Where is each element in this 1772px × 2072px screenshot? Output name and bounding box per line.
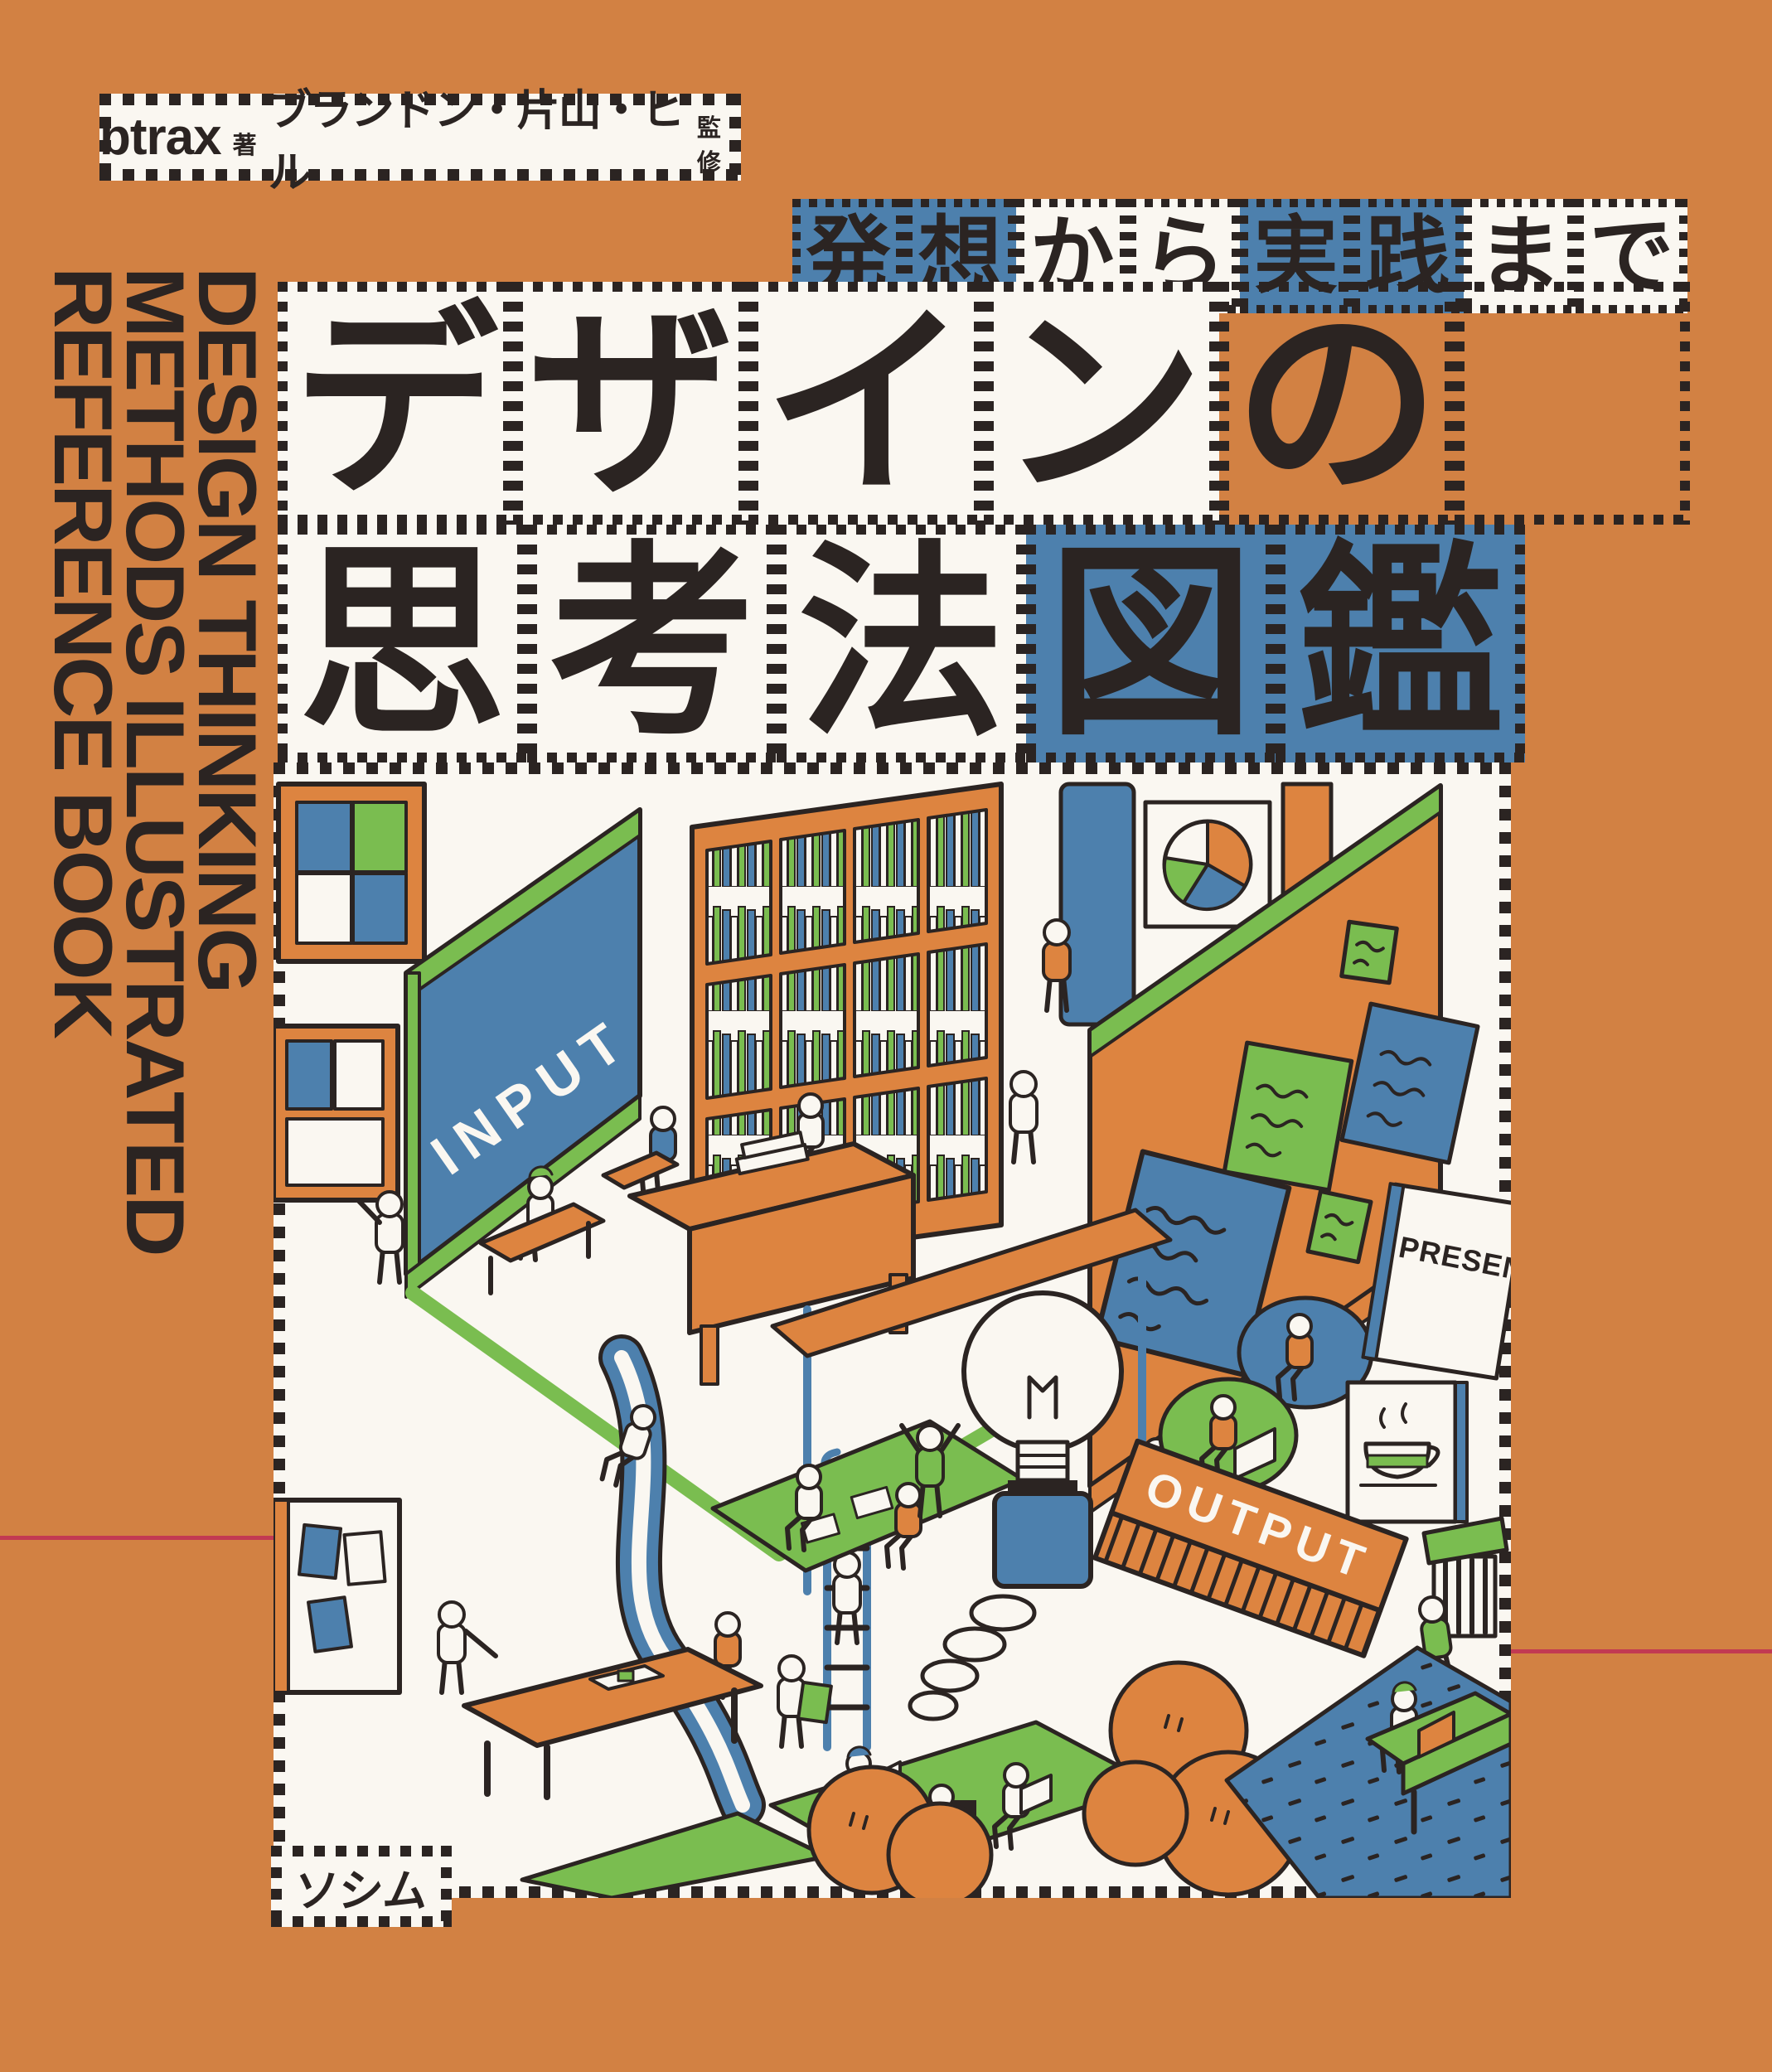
fold-line-right [1511,1649,1772,1653]
title-row-1: デ ザ イ ン の [278,282,1690,525]
author-badge: btrax 著 ブランドン・片山・ヒル 監修 [99,94,741,181]
side-title-line: DESIGN THINKING [191,267,264,1254]
cover-illustration: INPUT [274,762,1511,1898]
title-char-cell: ザ [513,282,748,525]
author-role: 著 [233,126,257,161]
coffee-poster [1348,1382,1467,1522]
slide [600,1358,743,1805]
title-row-2: 思 考 法 図 鑑 [278,525,1525,762]
title-char-cell: ン [984,282,1219,525]
side-title: DESIGN THINKING METHODS ILLUSTRATED REFE… [47,267,264,1254]
presentation-sign: PRESEN [1363,1184,1511,1378]
person [1010,1072,1037,1162]
title-char-cell: 図 [1026,525,1276,762]
title-char-cell: 思 [278,525,527,762]
publisher-logo: ソシム [271,1846,452,1927]
side-title-line: METHODS ILLUSTRATED [119,267,191,1254]
side-title-line: REFERENCE BOOK [47,267,119,1254]
supervisor-name: ブランドン・片山・ヒル [269,75,685,200]
title-char-cell: イ [748,282,984,525]
window [278,784,424,961]
title-char-cell: の [1219,282,1455,525]
fold-line-left [0,1536,274,1540]
title-char-cell: 法 [777,525,1026,762]
window [274,1026,398,1200]
book-cover: DESIGN THINKING METHODS ILLUSTRATED REFE… [0,0,1772,2072]
title-char-cell [1455,282,1690,525]
office-scene: INPUT [274,762,1511,1898]
supervisor-role: 監修 [697,109,741,178]
author-name: btrax [99,108,221,167]
title-char-cell: デ [278,282,513,525]
notice-board [274,1500,399,1692]
person [358,1192,403,1282]
title-char-cell: 考 [527,525,777,762]
title-char-cell: 鑑 [1276,525,1525,762]
publisher-name: ソシム [291,1854,432,1920]
person [1043,920,1070,1010]
